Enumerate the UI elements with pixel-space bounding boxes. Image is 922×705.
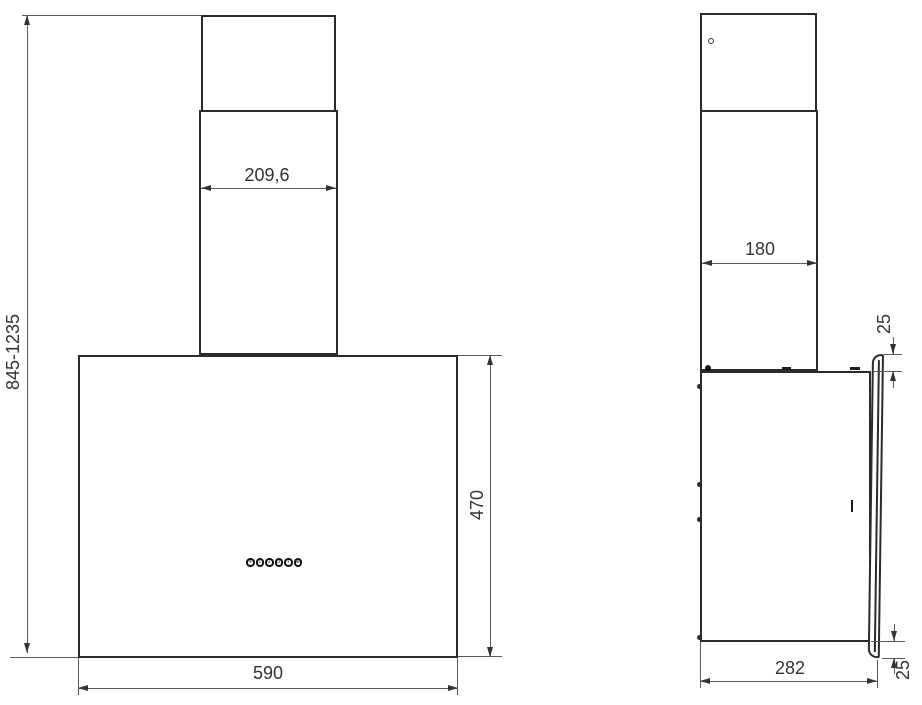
arrowhead-right-icon (326, 185, 336, 191)
dim-line-body-width (78, 688, 458, 689)
front-chimney-lower-section (199, 110, 338, 355)
dim-line-body-depth (700, 681, 877, 682)
glass-panel-inner-line (874, 360, 880, 652)
ext-line-top (22, 15, 201, 16)
dim-label-glass-bottom-offset: 25 (894, 660, 912, 680)
dim-label-body-width: 590 (253, 664, 283, 682)
ext-line-body-top-right (873, 371, 902, 372)
arrowhead-down-icon (24, 643, 30, 653)
arrowhead-down-icon (890, 344, 896, 354)
arrowhead-down-icon (487, 647, 493, 657)
side-clip-mark (851, 500, 853, 512)
ext-line-body-bottom-right (871, 641, 905, 642)
arrowhead-up-icon (487, 355, 493, 365)
panel-bracket-mark (850, 367, 860, 370)
dimension-drawing: ✳ 1 2 3 ▪ ⊕ 209,6 845-1235 470 590 (0, 0, 922, 705)
light-button-icon: ✳ (246, 558, 255, 567)
ext-line-depth-right (877, 660, 878, 688)
arrowhead-down-icon (891, 631, 897, 641)
speed-2-button-icon: 2 (265, 558, 274, 567)
side-hood-body (700, 371, 871, 642)
arrowhead-left-icon (201, 185, 211, 191)
top-fixing-mark (782, 367, 791, 370)
arrowhead-left-icon (700, 678, 710, 684)
ext-line-body-top (458, 355, 502, 356)
arrowhead-right-icon (807, 260, 817, 266)
arrowhead-left-icon (702, 260, 712, 266)
off-button-icon: ▪ (284, 558, 293, 567)
mounting-bolt-icon (705, 365, 711, 371)
timer-button-icon: ⊕ (294, 558, 303, 567)
front-chimney-upper-section (201, 15, 336, 112)
rear-tab-icon (697, 482, 701, 487)
dim-line-overall-height (27, 15, 28, 653)
ext-line-bottom (10, 657, 78, 658)
rear-tab-icon (697, 635, 701, 640)
dim-label-body-height: 470 (468, 490, 486, 520)
rear-tab-icon (697, 384, 701, 389)
dim-label-overall-height: 845-1235 (4, 314, 22, 390)
dim-label-body-depth: 282 (775, 659, 805, 677)
arrowhead-right-icon (448, 685, 458, 691)
arrowhead-up-icon (24, 15, 30, 25)
speed-1-button-icon: 1 (256, 558, 265, 567)
rear-tab-icon (697, 517, 701, 522)
dim-line-chimney-width (201, 188, 336, 189)
ext-line-glass-top (884, 354, 902, 355)
front-hood-body (78, 355, 458, 658)
side-chimney-upper-section (700, 13, 817, 112)
dim-line-body-height (490, 355, 491, 657)
dim-label-chimney-depth: 180 (745, 240, 775, 258)
speed-3-button-icon: 3 (275, 558, 284, 567)
arrowhead-left-icon (78, 685, 88, 691)
ext-line-body-bottom (458, 656, 502, 657)
dim-line-chimney-depth (702, 263, 817, 264)
arrowhead-right-icon (867, 678, 877, 684)
arrowhead-up-icon (890, 371, 896, 381)
screw-hole-icon (708, 38, 714, 44)
dim-label-chimney-width: 209,6 (244, 166, 289, 184)
control-button-row: ✳ 1 2 3 ▪ ⊕ (246, 558, 302, 567)
dim-label-glass-top-offset: 25 (875, 314, 893, 334)
